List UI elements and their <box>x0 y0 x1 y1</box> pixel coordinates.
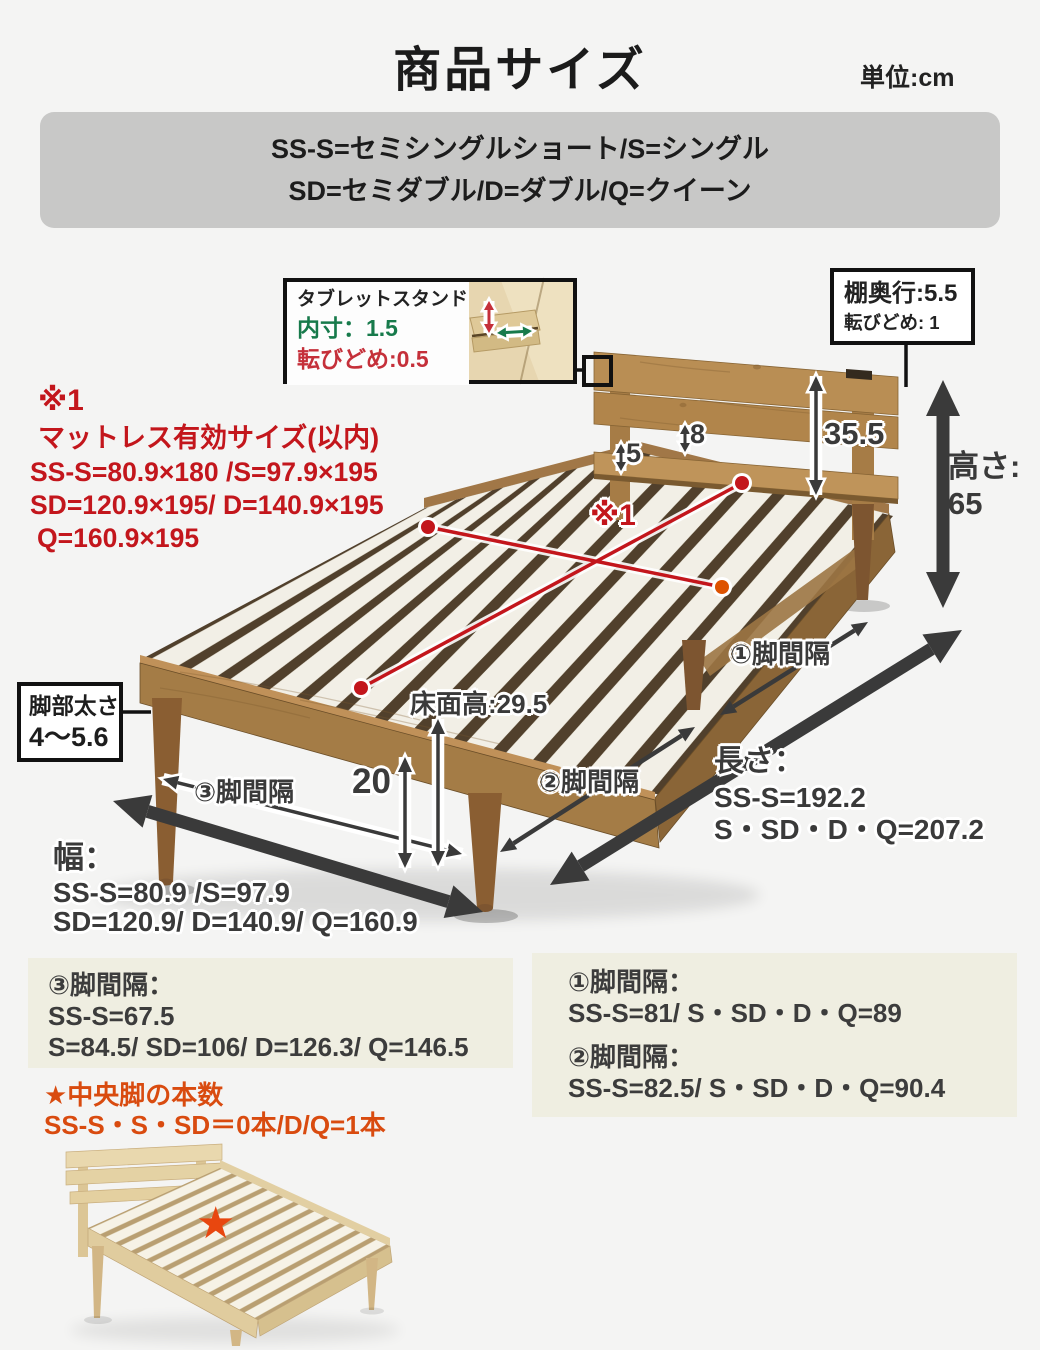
mattress-x-mark: ※1 <box>590 498 636 533</box>
legend-line-1: SS-S=セミシングルショート/S=シングル <box>271 128 769 170</box>
mattress-note-mark: ※1 <box>38 384 384 418</box>
width-label: 幅： <box>53 838 418 878</box>
tablet-stand-callout-text: タブレットスタンド 内寸：1.5 転びどめ:0.5 <box>287 282 469 385</box>
shelf-stopper-dim: 転びどめ: 1 <box>844 310 971 336</box>
floor-height-dim: 床面高:29.5 <box>410 684 547 721</box>
legend-line-2: SD=セミダブル/D=ダブル/Q=クイーン <box>289 170 752 212</box>
length-dims: 長さ： SS-S=192.2 S・SD・D・Q=207.2 <box>714 742 984 846</box>
info-left-line-1: SS-S=67.5 <box>48 1001 513 1032</box>
mattress-note-line-1: SS-S=80.9×180 /S=97.9×195 <box>30 456 384 489</box>
info-right-line-1: SS-S=81/ S・SD・D・Q=89 <box>568 998 1017 1029</box>
width-line-1: SS-S=80.9 /S=97.9 <box>53 878 418 907</box>
length-line-1: SS-S=192.2 <box>714 782 984 814</box>
tablet-stand-title: タブレットスタンド <box>297 287 469 313</box>
center-leg-note-line-2: SS-S・S・SD＝0本/D/Q=1本 <box>44 1110 386 1140</box>
mattress-size-note: ※1 マットレス有効サイズ(以内) SS-S=80.9×180 /S=97.9×… <box>30 384 384 555</box>
info-right-title-1: ①脚間隔： <box>568 967 1017 998</box>
info-box-leg-gap-3: ③脚間隔： SS-S=67.5 S=84.5/ SD=106/ D=126.3/… <box>28 958 513 1068</box>
gap-dim-8: 8 <box>690 419 705 450</box>
leg-gap-2-label: ②脚間隔 <box>539 762 639 799</box>
tablet-stopper-dim: 転びどめ:0.5 <box>297 344 469 375</box>
info-right-line-2: SS-S=82.5/ S・SD・D・Q=90.4 <box>568 1073 1017 1104</box>
total-height-value: 65 <box>948 485 1020 522</box>
leg-gap-1-label: ①脚間隔 <box>730 634 830 671</box>
leg-height-dim-20: 20 <box>352 762 391 802</box>
unit-label: 単位:cm <box>860 58 954 94</box>
info-left-line-2: S=84.5/ SD=106/ D=126.3/ Q=146.5 <box>48 1032 513 1063</box>
length-label: 長さ： <box>714 742 984 782</box>
leg-thickness-callout: 脚部太さ 4〜5.6 <box>17 682 123 762</box>
leg-thickness-value: 4〜5.6 <box>29 721 119 754</box>
total-height-dim: 高さ: 65 <box>948 448 1020 522</box>
center-leg-note: ★中央脚の本数 SS-S・S・SD＝0本/D/Q=1本 <box>44 1080 386 1140</box>
gap-dim-5: 5 <box>626 438 641 469</box>
leg-gap-3-label: ③脚間隔 <box>194 772 294 809</box>
leg-thickness-label: 脚部太さ <box>29 692 119 721</box>
shelf-depth-callout: 棚奥行:5.5 転びどめ: 1 <box>830 268 975 345</box>
size-legend: SS-S=セミシングルショート/S=シングル SD=セミダブル/D=ダブル/Q=… <box>40 112 1000 228</box>
mattress-note-line-2: SD=120.9×195/ D=140.9×195 <box>30 489 384 522</box>
info-left-title: ③脚間隔： <box>48 970 513 1001</box>
mattress-note-title: マットレス有効サイズ(以内) <box>38 420 384 456</box>
info-box-leg-gap-1-2: ①脚間隔： SS-S=81/ S・SD・D・Q=89 ②脚間隔： SS-S=82… <box>532 953 1017 1117</box>
shelf-depth-dim: 棚奥行:5.5 <box>844 278 971 310</box>
headboard-height-dim: 35.5 <box>824 416 884 452</box>
mattress-note-line-3: Q=160.9×195 <box>37 522 384 555</box>
product-size-sheet: 商品サイズ 単位:cm SS-S=セミシングルショート/S=シングル SD=セミ… <box>0 0 1040 1350</box>
total-height-label: 高さ: <box>948 448 1020 485</box>
center-leg-star-icon: ★ <box>196 1198 235 1249</box>
tablet-inner-dim: 内寸：1.5 <box>297 313 469 344</box>
width-line-2: SD=120.9/ D=140.9/ Q=160.9 <box>53 907 418 936</box>
info-right-title-2: ②脚間隔： <box>568 1042 1017 1073</box>
length-line-2: S・SD・D・Q=207.2 <box>714 814 984 846</box>
tablet-stand-callout: タブレットスタンド 内寸：1.5 転びどめ:0.5 <box>283 278 577 384</box>
center-leg-note-line-1: ★中央脚の本数 <box>44 1080 386 1110</box>
width-dims: 幅： SS-S=80.9 /S=97.9 SD=120.9/ D=140.9/ … <box>53 838 418 936</box>
